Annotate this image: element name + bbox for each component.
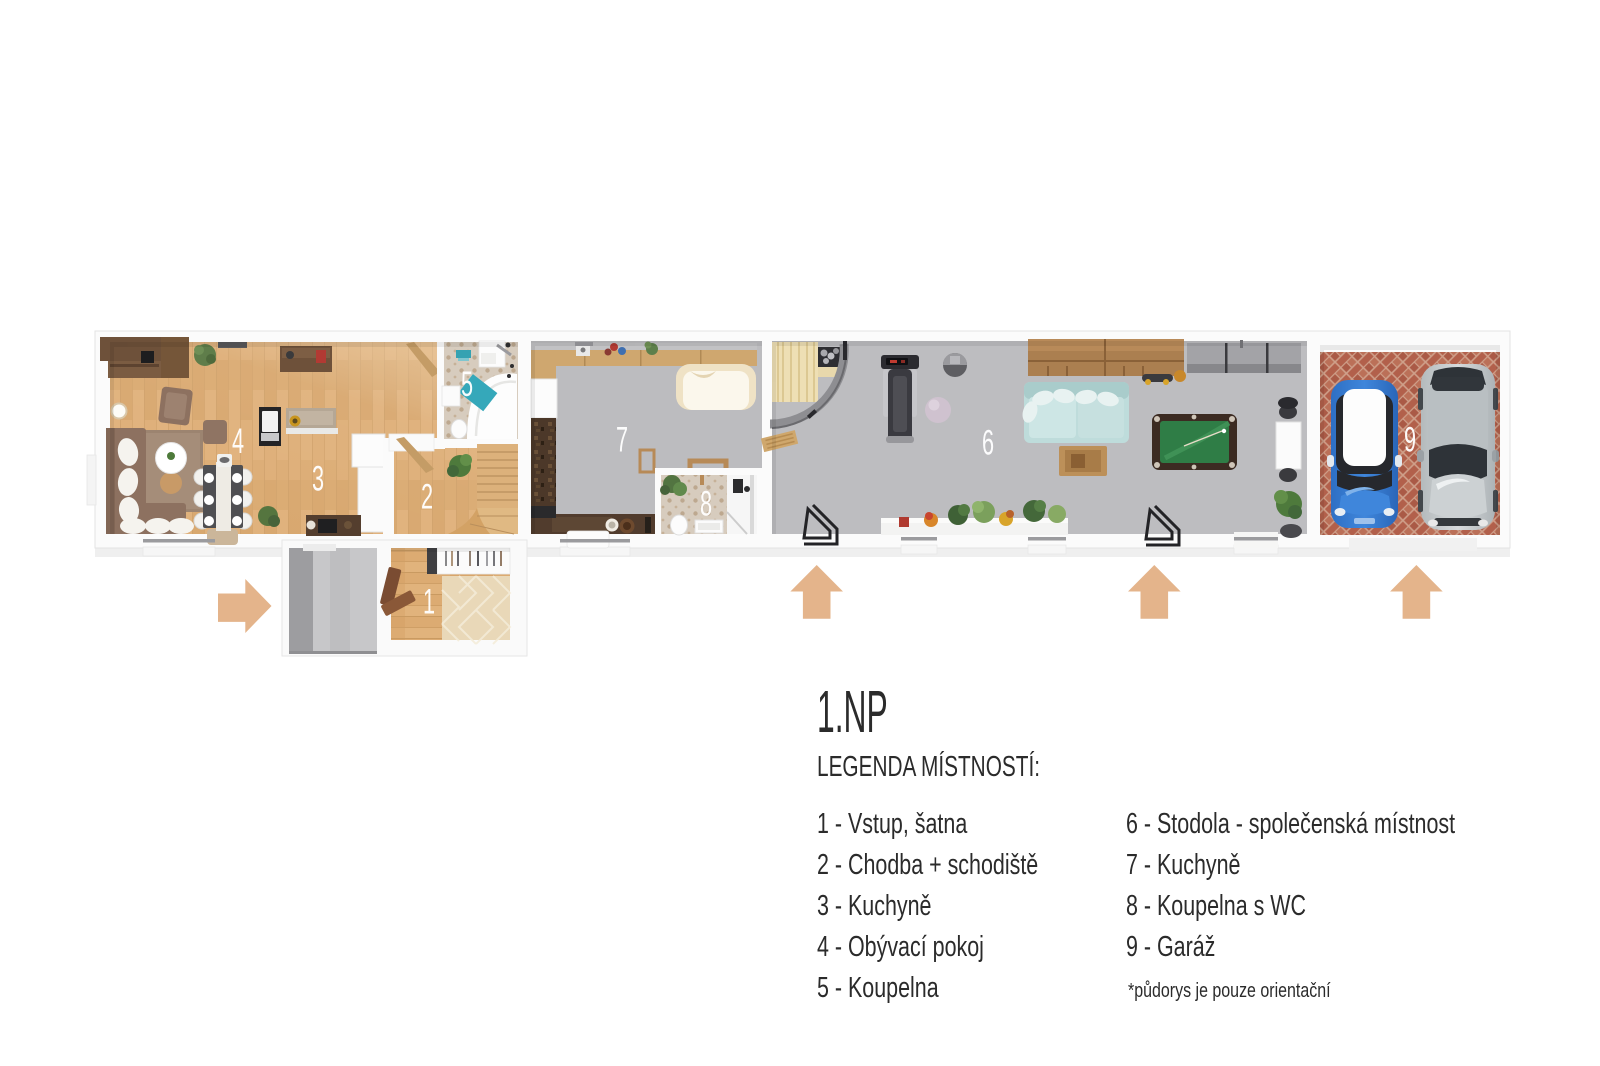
svg-text:2 - Chodba + schodiště: 2 - Chodba + schodiště bbox=[817, 849, 1038, 881]
svg-text:9: 9 bbox=[1404, 421, 1416, 459]
svg-text:6: 6 bbox=[982, 424, 994, 462]
svg-text:7 - Kuchyně: 7 - Kuchyně bbox=[1126, 849, 1240, 881]
svg-text:*půdorys je pouze orientační: *půdorys je pouze orientační bbox=[1128, 978, 1331, 1001]
svg-text:8 - Koupelna s WC: 8 - Koupelna s WC bbox=[1126, 890, 1306, 922]
svg-text:1 - Vstup, šatna: 1 - Vstup, šatna bbox=[817, 808, 968, 840]
svg-text:5 - Koupelna: 5 - Koupelna bbox=[817, 972, 939, 1004]
svg-text:8: 8 bbox=[700, 485, 712, 523]
svg-text:1.NP: 1.NP bbox=[817, 680, 888, 746]
svg-text:4 - Obývací pokoj: 4 - Obývací pokoj bbox=[817, 931, 984, 963]
svg-text:5: 5 bbox=[461, 366, 473, 404]
svg-text:LEGENDA MÍSTNOSTÍ:: LEGENDA MÍSTNOSTÍ: bbox=[817, 750, 1040, 783]
svg-text:4: 4 bbox=[232, 423, 244, 461]
svg-text:7: 7 bbox=[616, 421, 628, 459]
svg-text:6 - Stodola - společenská míst: 6 - Stodola - společenská místnost bbox=[1126, 808, 1455, 840]
svg-text:1: 1 bbox=[423, 583, 435, 621]
svg-text:9 - Garáž: 9 - Garáž bbox=[1126, 931, 1215, 963]
svg-text:3 - Kuchyně: 3 - Kuchyně bbox=[817, 890, 931, 922]
svg-text:3: 3 bbox=[312, 460, 324, 498]
svg-text:2: 2 bbox=[421, 478, 433, 516]
